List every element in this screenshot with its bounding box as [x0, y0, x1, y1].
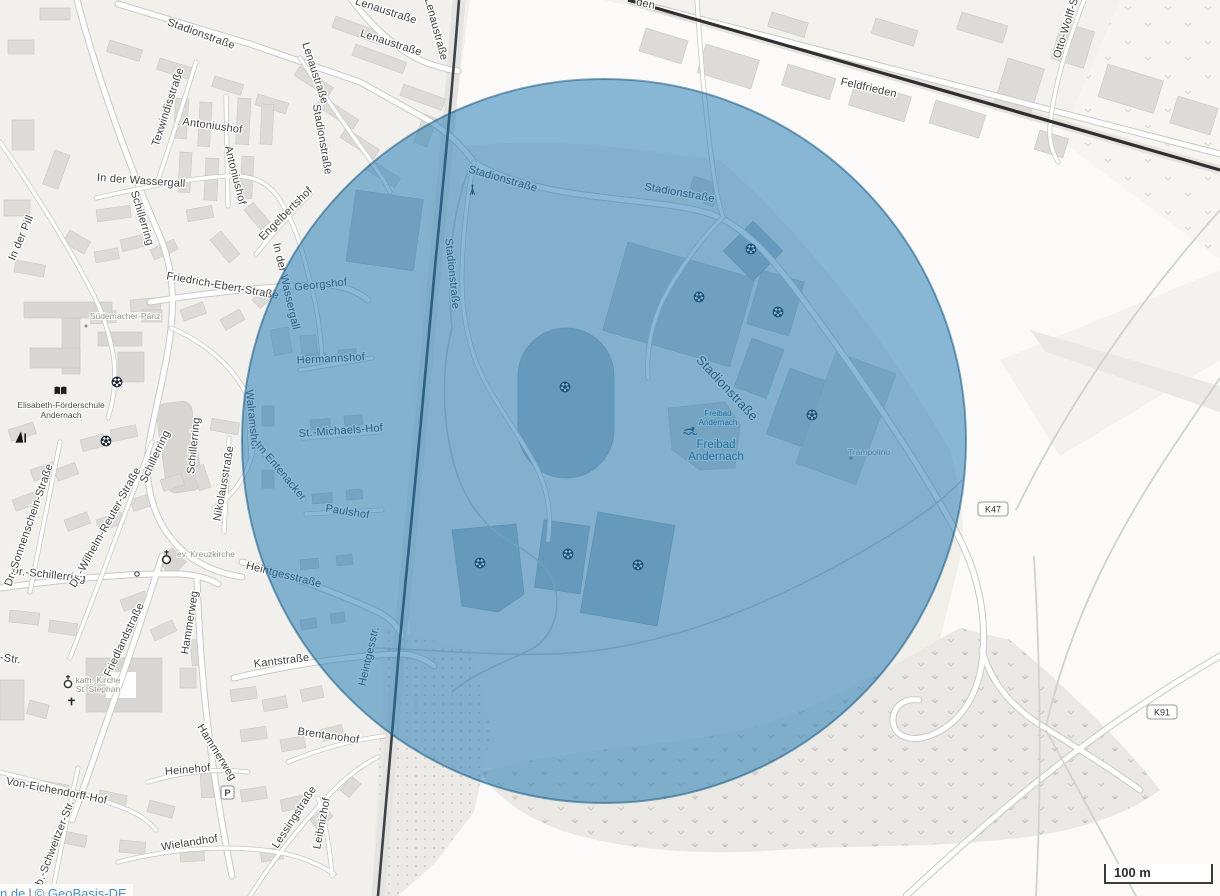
attribution-link-fragment[interactable]: n.de [0, 886, 25, 896]
attribution-separator: | [28, 886, 31, 896]
soccer-icon [101, 436, 111, 446]
poi-label-suedemacher: Südemacher-Pänz [90, 311, 160, 321]
road-shield-k47: K47 [978, 502, 1008, 516]
attribution-source-link[interactable]: © GeoBasis-DE [35, 886, 127, 896]
scale-bar-label: 100 m [1114, 865, 1151, 880]
radius-circle-overlay[interactable] [242, 79, 966, 803]
scale-bar: 100 m [1104, 864, 1213, 884]
parking-icon: P [221, 786, 234, 799]
shield-label: K47 [985, 505, 1001, 515]
poi-label-school: Elisabeth-Förderschule [17, 400, 105, 410]
school-book-icon [55, 387, 67, 395]
soccer-icon [112, 377, 122, 387]
parking-letter: P [224, 788, 231, 799]
poi-label-kreuzkirche: ev. Kreuzkirche [177, 549, 235, 559]
shield-label: K91 [1154, 708, 1170, 718]
poi-label-kath-kirche: St. Stephan [76, 684, 121, 694]
street-label: den [635, 0, 656, 12]
map-viewport[interactable]: P Lenaustraße Lenaustraße Lenaustraße Le… [0, 0, 1220, 896]
poi-label-school: Andernach [40, 410, 81, 420]
map-attribution: n.de|© GeoBasis-DE [0, 884, 133, 896]
poi-dot [85, 325, 88, 328]
map-canvas[interactable]: P Lenaustraße Lenaustraße Lenaustraße Le… [0, 0, 1220, 896]
road-shield-k91: K91 [1147, 705, 1177, 719]
